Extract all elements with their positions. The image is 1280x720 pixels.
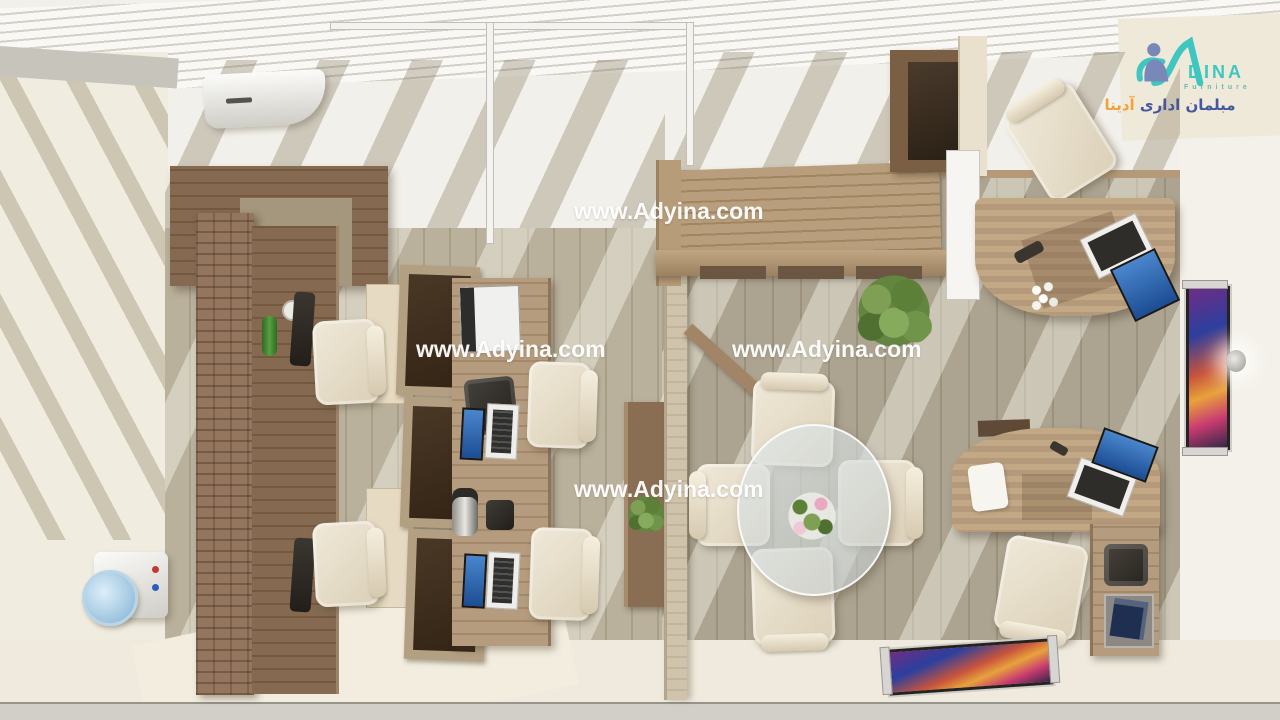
desk-phone-2 <box>486 500 514 530</box>
glass-partition-top-bar <box>330 22 694 30</box>
paper-sheet <box>967 462 1009 513</box>
wall-art-frame <box>1186 286 1230 450</box>
green-bottle <box>262 316 277 356</box>
floor-art-bracket-left <box>879 647 892 696</box>
desk-phone-3 <box>1104 544 1148 586</box>
watermark-top: www.Adyina.com <box>574 198 764 225</box>
dispenser-tap-red <box>152 566 159 573</box>
table-centerpiece-flowers <box>782 486 842 546</box>
persian-tagline: مبلمان اداری <box>1140 96 1236 114</box>
brick-feature-wall <box>196 213 254 695</box>
monitor-screen-1 <box>460 407 486 460</box>
navy-tablet <box>1110 598 1149 640</box>
watermark-mid-right: www.Adyina.com <box>732 336 922 363</box>
logo-persian-line: مبلمان اداری آدینا <box>1076 96 1264 114</box>
bottom-slab-edge <box>0 702 1280 720</box>
dispenser-tap-blue <box>152 584 159 591</box>
task-chair-3 <box>527 361 592 449</box>
glass-partition-post <box>486 22 494 244</box>
watermark-mid-left: www.Adyina.com <box>416 336 606 363</box>
beam-slot-1 <box>700 266 766 279</box>
art-bracket-top <box>1182 280 1228 289</box>
stair-shadow-stripes <box>0 60 168 540</box>
beam-slot-2 <box>778 266 844 279</box>
office-topdown-render: www.Adyina.com www.Adyina.com www.Adyina… <box>0 0 1280 720</box>
brand-logo: DINA Furniture مبلمان اداری آدینا <box>1076 24 1276 124</box>
wardrobe-glass-door <box>908 62 958 160</box>
monitor-screen-2 <box>462 553 488 608</box>
wall-sconce <box>1226 350 1246 372</box>
candy-scatter <box>1028 280 1062 314</box>
watermark-bottom: www.Adyina.com <box>574 476 764 503</box>
art-bracket-bottom <box>1182 447 1228 456</box>
keyboard-1 <box>485 403 520 460</box>
executive-chair-2 <box>992 534 1089 643</box>
task-chair-1 <box>312 318 380 405</box>
persian-brand: آدینا <box>1104 96 1134 114</box>
logo-subtext: Furniture <box>1184 84 1251 91</box>
keyboard-2 <box>486 551 521 610</box>
coffee-maker <box>452 488 478 536</box>
task-chair-4 <box>528 527 593 621</box>
glass-partition-post-2 <box>686 22 694 166</box>
task-chair-2 <box>312 520 380 607</box>
logo-wordmark: DINA <box>1188 62 1244 83</box>
water-bottle <box>82 570 138 626</box>
